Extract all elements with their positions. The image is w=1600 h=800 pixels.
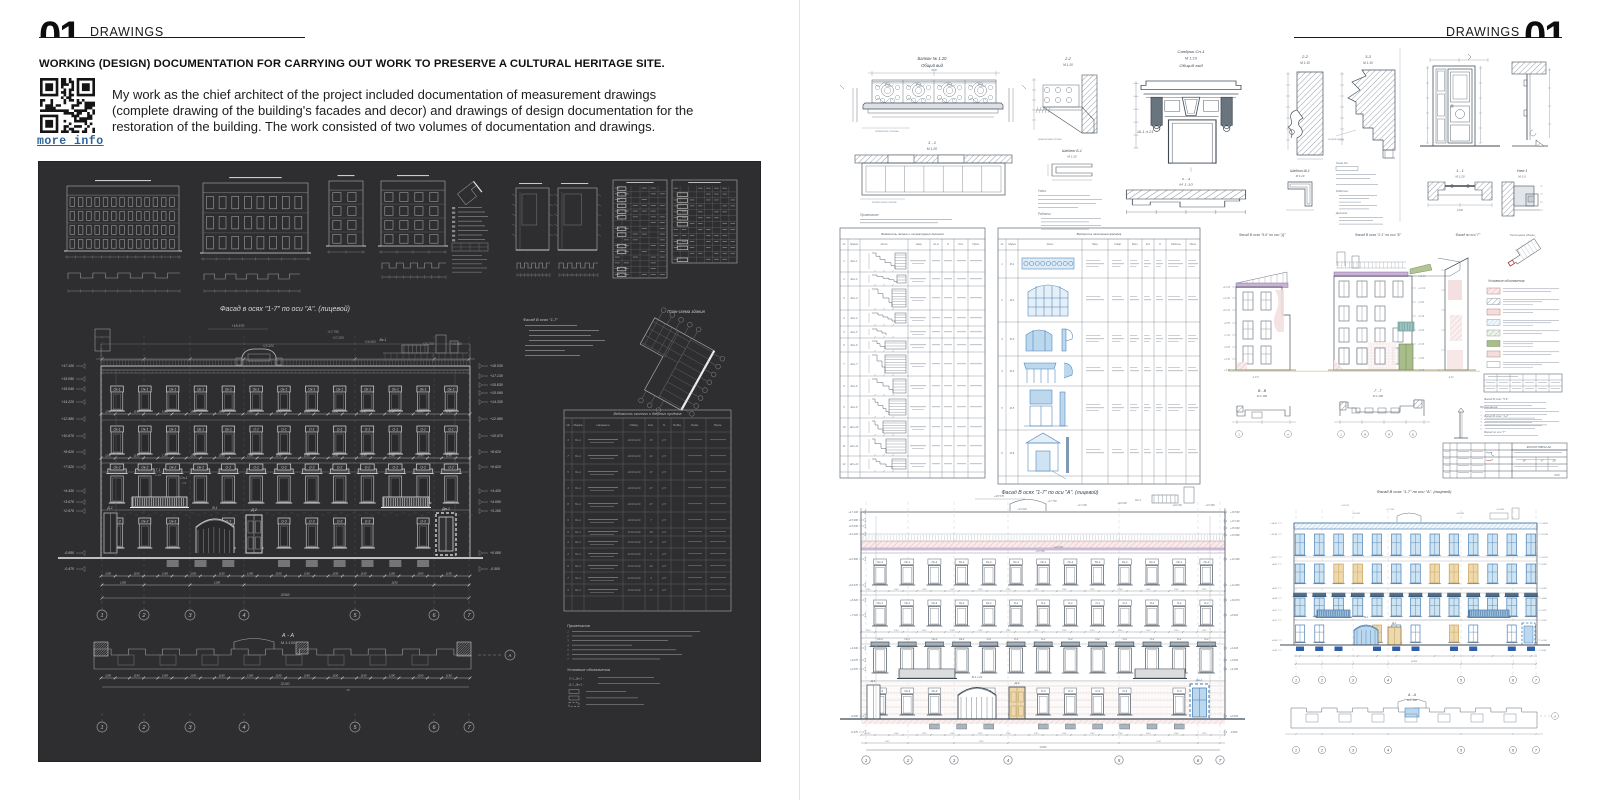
svg-text:А - А: А - А — [281, 633, 295, 639]
svg-text:2100×1190: 2100×1190 — [627, 576, 641, 580]
svg-text:М 1:20: М 1:20 — [1067, 155, 1077, 159]
svg-text:1190: 1190 — [1090, 630, 1095, 632]
svg-text:Сн-1: Сн-1 — [180, 476, 187, 480]
svg-text:Ок-3: Ок-3 — [169, 519, 176, 523]
svg-text:1: 1 — [100, 613, 103, 619]
svg-text:+4.090: +4.090 — [1230, 658, 1239, 662]
svg-text:5: 5 — [1460, 748, 1463, 753]
svg-text:1190: 1190 — [446, 453, 452, 457]
svg-text:М 1:20: М 1:20 — [927, 147, 937, 151]
svg-text:М 1:10: М 1:10 — [1300, 61, 1310, 65]
svg-text:Прим.: Прим. — [972, 242, 980, 246]
svg-text:Ок-1: Ок-1 — [1176, 560, 1182, 564]
svg-text:+9.80: +9.80 — [1418, 301, 1425, 304]
svg-text:Шт-2: Шт-2 — [851, 277, 858, 281]
svg-text:О-1: О-1 — [1041, 601, 1046, 605]
svg-text:1190: 1190 — [105, 409, 111, 413]
svg-text:32969: 32969 — [281, 593, 290, 597]
svg-text:2100×1190: 2100×1190 — [627, 552, 641, 556]
svg-text:Шаблон Ш-1: Шаблон Ш-1 — [1290, 169, 1310, 173]
svg-text:1190: 1190 — [894, 630, 899, 632]
svg-text:В-1 л 21: В-1 л 21 — [972, 675, 983, 679]
svg-text:1190: 1190 — [1174, 630, 1179, 632]
svg-text:+17.200: +17.200 — [1077, 503, 1087, 507]
svg-text:Шт-12: Шт-12 — [850, 462, 859, 466]
svg-text:Фасад В осях "1-7" по оси "А": Фасад В осях "1-7" по оси "А". (лицевой) — [1001, 489, 1098, 496]
svg-text:О-3: О-3 — [1177, 689, 1182, 693]
svg-text:+15.990: +15.990 — [849, 518, 859, 522]
svg-text:О-2: О-2 — [448, 465, 454, 469]
svg-text:Шт-8: Шт-8 — [851, 384, 858, 388]
svg-text:Ок-1: Ок-1 — [447, 387, 454, 391]
svg-text:А: А — [1286, 433, 1289, 437]
svg-text:2100×1190: 2100×1190 — [627, 540, 641, 544]
svg-text:3000: 3000 — [931, 68, 937, 72]
svg-text:Ок-1: Ок-1 — [225, 427, 232, 431]
svg-text:М-3: М-3 — [1010, 337, 1015, 341]
svg-text:+7.20: +7.20 — [1224, 334, 1231, 337]
svg-text:+0.08: +0.08 — [1541, 640, 1547, 642]
svg-text:Ок-1: Ок-1 — [197, 387, 204, 391]
svg-text:Фасад по оси "Г": Фасад по оси "Г" — [1456, 233, 1482, 237]
svg-text:-0.50: -0.50 — [1272, 650, 1278, 652]
svg-text:Прим.: Прим. — [1189, 243, 1196, 246]
svg-text:О-2: О-2 — [1014, 637, 1019, 641]
svg-text:1190: 1190 — [120, 580, 126, 584]
svg-text:Д-2: Д-2 — [1014, 681, 1020, 685]
svg-text:2,5: 2,5 — [661, 486, 666, 490]
svg-text:Ок-1: Ок-1 — [986, 601, 992, 605]
svg-text:+0.08: +0.08 — [1271, 640, 1277, 642]
svg-text:1190: 1190 — [1062, 630, 1067, 632]
svg-text:А - А: А - А — [1407, 693, 1417, 697]
svg-text:+3.070: +3.070 — [63, 500, 74, 504]
svg-text:+17.100: +17.100 — [849, 510, 859, 514]
svg-text:3: 3 — [1352, 678, 1355, 683]
svg-text:+3.160: +3.160 — [1230, 667, 1239, 671]
svg-text:План-схема здания: План-схема здания — [667, 309, 705, 314]
svg-text:О-2: О-2 — [1150, 637, 1155, 641]
svg-text:17: 17 — [1541, 459, 1544, 463]
svg-text:1190: 1190 — [389, 409, 395, 413]
svg-text:1190: 1190 — [219, 453, 225, 457]
svg-text:+17.200: +17.200 — [332, 336, 344, 340]
svg-text:2: 2 — [1320, 678, 1324, 683]
svg-text:+8.620: +8.620 — [63, 450, 74, 454]
svg-text:Марка: Марка — [574, 423, 583, 427]
svg-text:2: 2 — [906, 758, 910, 763]
svg-text:+5.30: +5.30 — [1418, 343, 1425, 346]
svg-text:1190: 1190 — [922, 589, 927, 591]
svg-text:2: 2 — [141, 725, 145, 731]
svg-text:1190: 1190 — [922, 630, 927, 632]
svg-text:+15.960: +15.960 — [1205, 503, 1215, 507]
svg-text:+11.40: +11.40 — [1418, 287, 1426, 290]
svg-text:1190: 1190 — [1156, 741, 1161, 743]
svg-text:Ок-1: Ок-1 — [1122, 560, 1128, 564]
svg-text:+14.220: +14.220 — [849, 532, 859, 536]
svg-text:3: 3 — [953, 758, 956, 763]
svg-text:4: 4 — [242, 613, 245, 619]
svg-text:1190: 1190 — [190, 409, 196, 413]
svg-text:-0.080: -0.080 — [64, 551, 74, 555]
svg-text:+15.090: +15.090 — [1230, 533, 1240, 537]
svg-text:О-2: О-2 — [1041, 637, 1046, 641]
svg-text:4: 4 — [242, 725, 245, 731]
svg-text:М-4: М-4 — [1010, 369, 1015, 373]
svg-text:2,5: 2,5 — [661, 588, 666, 592]
svg-text:1190: 1190 — [133, 673, 139, 677]
svg-text:+8.40: +8.40 — [1418, 315, 1425, 318]
svg-text:М 1:100: М 1:100 — [1373, 394, 1384, 398]
svg-text:1: 1 — [100, 725, 103, 731]
svg-text:+12.980: +12.980 — [490, 417, 503, 421]
svg-text:1190: 1190 — [1118, 630, 1123, 632]
svg-text:1190: 1190 — [275, 673, 281, 677]
svg-text:Шт-11: Шт-11 — [850, 444, 859, 448]
svg-text:4: 4 — [1007, 758, 1010, 763]
svg-text:1190: 1190 — [247, 673, 253, 677]
svg-text:О-2: О-2 — [420, 465, 426, 469]
svg-text:+18.530: +18.530 — [1230, 510, 1240, 514]
svg-text:15: 15 — [649, 438, 653, 442]
svg-text:О-2: О-2 — [281, 465, 287, 469]
svg-text:+12.980: +12.980 — [61, 417, 74, 421]
svg-text:3: 3 — [1480, 418, 1482, 420]
svg-text:1190: 1190 — [446, 409, 452, 413]
svg-text:1190: 1190 — [1202, 630, 1207, 632]
svg-text:1: 1 — [1295, 678, 1297, 683]
svg-text:28: 28 — [345, 688, 350, 692]
svg-text:Эскиз: Эскиз — [1047, 243, 1055, 246]
svg-text:-0.50: -0.50 — [1541, 650, 1547, 652]
svg-text:1: 1 — [1001, 262, 1003, 266]
svg-text:1190: 1190 — [275, 453, 281, 457]
svg-text:1190: 1190 — [214, 580, 220, 584]
svg-text:+17.100: +17.100 — [61, 364, 74, 368]
svg-text:6: 6 — [1197, 758, 1200, 763]
svg-text:Фасад В осях "1-7": Фасад В осях "1-7" — [523, 317, 558, 322]
svg-text:+7.520: +7.520 — [850, 613, 859, 617]
svg-text:М 1:100: М 1:100 — [1257, 394, 1268, 398]
svg-text:1190: 1190 — [391, 580, 397, 584]
svg-text:М 1:10: М 1:10 — [1185, 57, 1198, 61]
svg-text:О-1: О-1 — [1095, 601, 1100, 605]
svg-text:2100×1190: 2100×1190 — [627, 502, 641, 506]
svg-text:О-3: О-3 — [309, 519, 315, 523]
svg-text:Эскиз: Эскиз — [881, 242, 889, 246]
svg-text:Ок-1: Ок-1 — [575, 438, 581, 442]
svg-text:1190: 1190 — [304, 409, 310, 413]
svg-text:Ок-1: Ок-1 — [169, 427, 176, 431]
svg-text:М-5: М-5 — [1010, 406, 1015, 410]
svg-text:Марка: Марка — [1008, 243, 1016, 246]
svg-text:Ок-1: Ок-1 — [1013, 560, 1019, 564]
svg-text:1190: 1190 — [417, 409, 423, 413]
svg-text:1190: 1190 — [866, 630, 871, 632]
svg-text:1: 1 — [843, 259, 845, 263]
svg-text:А: А — [507, 653, 511, 658]
svg-text:Детали:: Детали: — [1335, 211, 1348, 215]
svg-text:Ок-3: Ок-3 — [904, 689, 910, 693]
svg-text:4: 4 — [1387, 678, 1390, 683]
svg-text:О-2: О-2 — [1177, 637, 1182, 641]
svg-text:Примечания:: Примечания: — [1480, 405, 1498, 409]
svg-text:М-2: М-2 — [1010, 298, 1015, 302]
svg-text:+16.500: +16.500 — [1117, 501, 1127, 505]
svg-text:Узел 1: Узел 1 — [1517, 169, 1528, 173]
svg-text:Ок-1: Ок-1 — [575, 540, 581, 544]
svg-text:Ок-1: Ок-1 — [575, 576, 581, 580]
svg-text:2100×1190: 2100×1190 — [627, 564, 641, 568]
svg-text:6: 6 — [1512, 678, 1515, 683]
svg-text:18: 18 — [649, 530, 653, 534]
svg-text:Ок-1: Ок-1 — [904, 601, 910, 605]
svg-text:1190: 1190 — [1090, 589, 1095, 591]
svg-text:+2.670: +2.670 — [63, 509, 74, 513]
svg-text:гранитная стена: гранитная стена — [1038, 137, 1062, 141]
svg-text:2100×1190: 2100×1190 — [627, 454, 641, 458]
svg-text:Условные обозначения: Условные обозначения — [567, 667, 611, 672]
svg-text:-0.40: -0.40 — [1448, 376, 1454, 379]
svg-text:Примечания: Примечания — [567, 623, 591, 628]
svg-text:7: 7 — [1535, 678, 1538, 683]
svg-text:М 1:5: М 1:5 — [1518, 175, 1526, 179]
svg-text:Ок-1: Ок-1 — [113, 427, 120, 431]
svg-text:1190: 1190 — [190, 673, 196, 677]
svg-text:2100×1190: 2100×1190 — [627, 486, 641, 490]
svg-text:Ок-1: Ок-1 — [575, 564, 581, 568]
svg-text:+12.980: +12.980 — [1230, 583, 1240, 587]
svg-text:Условные обозначения: Условные обозначения — [1488, 279, 1525, 283]
svg-text:Ок-2: Ок-2 — [904, 637, 910, 641]
svg-text:Ок-1: Ок-1 — [575, 552, 581, 556]
svg-text:+6.62: +6.62 — [1271, 588, 1277, 590]
svg-text:И: И — [1388, 433, 1391, 437]
svg-text:Марка: Марка — [850, 242, 858, 246]
svg-text:2,5: 2,5 — [661, 470, 666, 474]
svg-text:+15.090: +15.090 — [61, 377, 74, 381]
svg-text:20: 20 — [648, 564, 653, 568]
svg-text:Ок-1: Ок-1 — [575, 486, 581, 490]
svg-text:2,5: 2,5 — [661, 564, 666, 568]
svg-text:32160: 32160 — [281, 682, 290, 686]
svg-text:1190: 1190 — [389, 453, 395, 457]
svg-text:О-1: О-1 — [281, 427, 287, 431]
svg-text:О-1: О-1 — [393, 427, 399, 431]
svg-text:1190: 1190 — [275, 571, 281, 575]
svg-text:2100×1190: 2100×1190 — [627, 588, 641, 592]
svg-text:О-2: О-2 — [1204, 637, 1209, 641]
svg-text:3: 3 — [843, 296, 845, 300]
svg-text:О-1: О-1 — [309, 427, 315, 431]
svg-text:Назв.: Назв. — [1092, 243, 1099, 246]
svg-text:Ок-2: Ок-2 — [197, 465, 204, 469]
svg-text:Ок-1: Ок-1 — [1204, 560, 1210, 564]
svg-text:1190: 1190 — [1118, 589, 1123, 591]
svg-text:Шт-4: Шт-4 — [851, 316, 858, 320]
svg-text:7: 7 — [1219, 758, 1222, 763]
svg-text:В-1: В-1 — [1364, 616, 1368, 619]
svg-text:1190: 1190 — [105, 571, 111, 575]
svg-text:Шт-6: Шт-6 — [851, 343, 858, 347]
svg-text:+16.200: +16.200 — [1172, 503, 1182, 507]
svg-text:-0.470: -0.470 — [64, 567, 74, 571]
svg-text:4: 4 — [1387, 748, 1390, 753]
svg-text:+18.570: +18.570 — [232, 324, 245, 328]
svg-text:М 1:20: М 1:20 — [1455, 175, 1465, 179]
svg-text:Кол.: Кол. — [648, 423, 654, 427]
svg-text:+14.330: +14.330 — [1230, 557, 1240, 561]
svg-text:Ок-1: Ок-1 — [575, 502, 581, 506]
svg-text:2,5: 2,5 — [661, 454, 666, 458]
svg-text:3: 3 — [1352, 748, 1355, 753]
svg-text:1190: 1190 — [417, 673, 423, 677]
svg-text:1190: 1190 — [332, 571, 338, 575]
svg-text:6: 6 — [1512, 748, 1515, 753]
svg-text:+17.750: +17.750 — [1047, 499, 1057, 503]
svg-text:1190: 1190 — [1034, 589, 1039, 591]
svg-text:-0.080: -0.080 — [851, 714, 859, 718]
svg-text:В - В: В - В — [1258, 389, 1267, 393]
svg-text:Ок-1: Ок-1 — [1095, 560, 1101, 564]
svg-text:1190: 1190 — [133, 453, 139, 457]
svg-text:1190: 1190 — [190, 453, 196, 457]
svg-text:Ок-2: Ок-2 — [141, 465, 148, 469]
svg-text:+18.530: +18.530 — [490, 364, 503, 368]
svg-text:Ок-1: Ок-1 — [364, 387, 371, 391]
svg-text:1190: 1190 — [389, 571, 395, 575]
svg-text:О-2: О-2 — [226, 465, 232, 469]
svg-text:Фасад В осях "2-1" по оси "Б": Фасад В осях "2-1" по оси "Б" — [1355, 233, 1402, 237]
svg-text:Ок-1: Ок-1 — [141, 427, 148, 431]
svg-text:+16.200: +16.200 — [1456, 513, 1465, 515]
svg-text:л 9: л 9 — [181, 481, 187, 485]
svg-text:Ок-1: Ок-1 — [959, 560, 965, 564]
svg-text:1190: 1190 — [162, 571, 168, 575]
svg-text:О-1: О-1 — [448, 427, 454, 431]
svg-text:М 1:10: М 1:10 — [1296, 174, 1305, 178]
svg-text:1190: 1190 — [1174, 733, 1179, 735]
svg-text:-0.470: -0.470 — [851, 730, 859, 734]
svg-text:1190: 1190 — [978, 630, 983, 632]
svg-text:1190: 1190 — [978, 733, 983, 735]
svg-text:1190: 1190 — [1034, 630, 1039, 632]
svg-text:Ок-1: Ок-1 — [1135, 498, 1141, 502]
svg-text:кирпичная стена: кирпичная стена — [872, 200, 897, 204]
svg-text:+16.090: +16.090 — [1053, 545, 1063, 549]
svg-text:+8.85: +8.85 — [1224, 322, 1231, 325]
svg-text:штукатурка: штукатурка — [1328, 138, 1344, 141]
svg-text:+3.07: +3.07 — [1541, 610, 1547, 612]
svg-text:4: 4 — [1480, 421, 1482, 424]
svg-text:+4.30: +4.30 — [1224, 358, 1231, 361]
svg-text:1190: 1190 — [247, 453, 253, 457]
svg-text:+8.62: +8.62 — [1271, 564, 1277, 566]
svg-text:Ж: Ж — [1363, 433, 1367, 437]
svg-text:+10.67: +10.67 — [1541, 557, 1549, 559]
svg-text:Шаблон Б-1: Шаблон Б-1 — [1062, 149, 1082, 153]
svg-text:1190: 1190 — [866, 589, 871, 591]
svg-text:Работы:: Работы: — [1336, 189, 1349, 193]
svg-text:ООО: ООО — [1554, 474, 1560, 477]
svg-text:О-1: О-1 — [1123, 601, 1128, 605]
svg-text:Работы: Работы — [1171, 243, 1181, 246]
svg-text:1190: 1190 — [105, 453, 111, 457]
svg-text:О-1: О-1 — [1014, 601, 1019, 605]
svg-text:Кол.: Кол. — [958, 242, 963, 246]
svg-text:2,5: 2,5 — [661, 502, 666, 506]
svg-text:+8.620: +8.620 — [490, 450, 501, 454]
svg-text:1190: 1190 — [1146, 733, 1151, 735]
svg-text:+3.80: +3.80 — [1418, 357, 1425, 360]
svg-text:2,5: 2,5 — [661, 530, 666, 534]
svg-text:М 1:10: М 1:10 — [1363, 61, 1373, 65]
svg-text:1190: 1190 — [1006, 630, 1011, 632]
svg-text:Д-1: Д-1 — [106, 506, 113, 510]
svg-text:1190: 1190 — [1006, 733, 1011, 735]
svg-text:О-3: О-3 — [281, 519, 287, 523]
svg-text:Шт-3: Шт-3 — [851, 296, 858, 300]
svg-text:1190: 1190 — [361, 673, 367, 677]
svg-text:О-2: О-2 — [309, 465, 315, 469]
svg-text:3: 3 — [1001, 337, 1003, 341]
svg-text:1190: 1190 — [885, 741, 890, 743]
svg-text:О-3: О-3 — [365, 519, 371, 523]
svg-text:1190: 1190 — [162, 409, 168, 413]
svg-text:+15.830: +15.830 — [490, 383, 503, 387]
svg-text:Дм-1: Дм-1 — [441, 507, 450, 511]
svg-text:2: 2 — [1479, 415, 1482, 417]
svg-text:О-3: О-3 — [1123, 689, 1128, 693]
svg-text:М-6: М-6 — [1010, 451, 1015, 455]
svg-text:Шт-9: Шт-9 — [851, 405, 858, 409]
svg-text:+15.040: +15.040 — [61, 387, 74, 391]
svg-text:4: 4 — [843, 316, 845, 320]
svg-text:+17.750: +17.750 — [327, 330, 339, 334]
svg-text:Ок-1: Ок-1 — [877, 601, 883, 605]
svg-text:Фасад В осях "5-6" по оси "Д": Фасад В осях "5-6" по оси "Д" — [1239, 233, 1286, 237]
svg-text:1190: 1190 — [133, 409, 139, 413]
svg-text:+5.95: +5.95 — [1224, 346, 1231, 349]
svg-text:1190: 1190 — [950, 733, 955, 735]
svg-text:+6.620: +6.620 — [490, 465, 501, 469]
svg-text:27: 27 — [648, 540, 653, 544]
svg-text:Ок-1: Ок-1 — [877, 560, 883, 564]
svg-text:+4.430: +4.430 — [1230, 646, 1239, 650]
svg-text:+17.750: +17.750 — [1386, 509, 1395, 511]
svg-text:М 1:20: М 1:20 — [1063, 63, 1073, 67]
svg-text:1190: 1190 — [247, 571, 253, 575]
svg-text:Sобщ: Sобщ — [673, 423, 681, 427]
svg-text:+10.670: +10.670 — [490, 434, 503, 438]
svg-text:22: 22 — [648, 454, 653, 458]
svg-text:О-3: О-3 — [420, 519, 426, 523]
svg-text:+15.920: +15.920 — [1017, 507, 1027, 511]
svg-text:М 1:10: М 1:10 — [1179, 183, 1194, 186]
svg-text:17: 17 — [649, 470, 653, 474]
svg-text:О-1: О-1 — [1150, 601, 1155, 605]
svg-text:1190: 1190 — [1062, 589, 1067, 591]
svg-text:Г - Г: Г - Г — [1374, 389, 1382, 393]
svg-text:20: 20 — [1552, 459, 1556, 463]
svg-text:Разм.: Разм. — [691, 423, 699, 427]
svg-text:Сандрик Сн-1: Сандрик Сн-1 — [1177, 49, 1204, 54]
svg-text:5: 5 — [1460, 678, 1463, 683]
svg-text:Балкон № 1.20: Балкон № 1.20 — [918, 56, 948, 61]
svg-text:+12.98: +12.98 — [1223, 286, 1231, 289]
svg-text:5: 5 — [1001, 406, 1003, 410]
